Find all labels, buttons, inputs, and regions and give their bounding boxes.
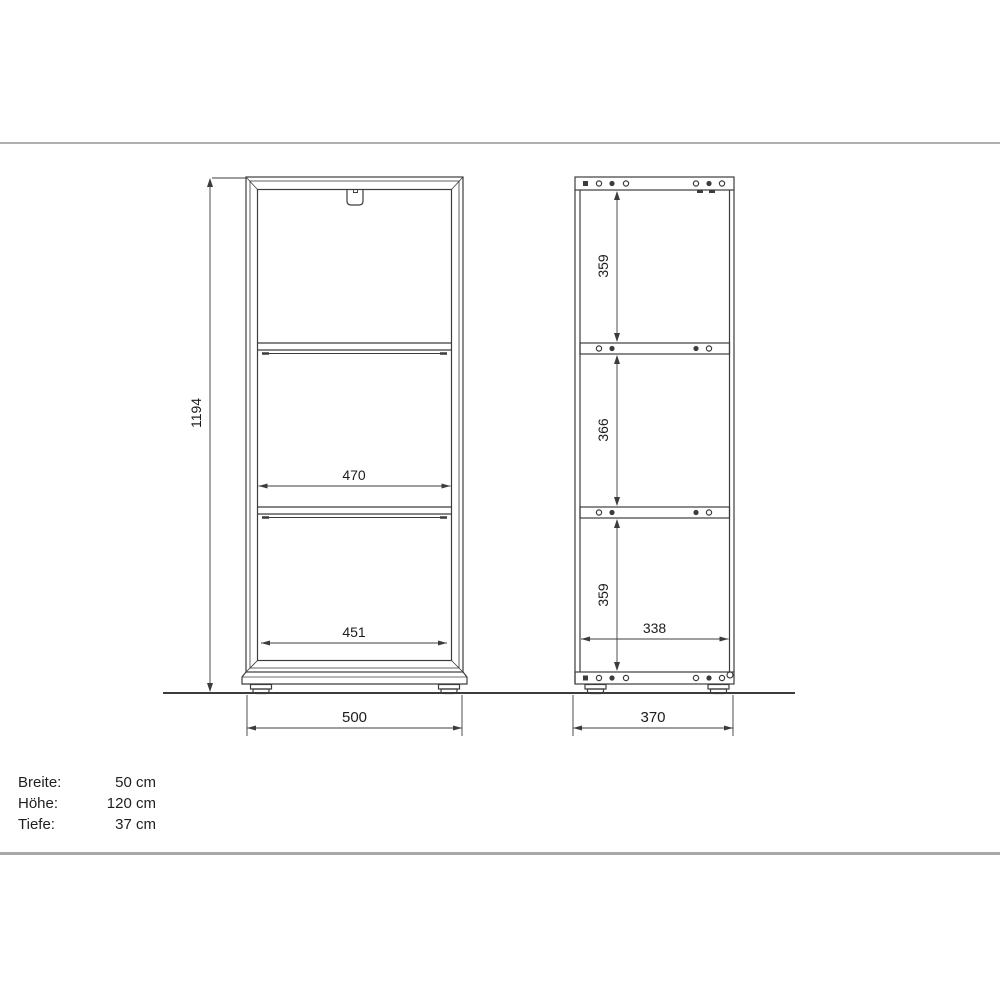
front-shelf-upper (258, 343, 452, 354)
side-bottom-compartment-label: 359 (595, 583, 611, 607)
screw-holes-top (583, 181, 725, 193)
front-shelf-lower (258, 507, 452, 518)
spec-value-depth: 37 cm (90, 814, 156, 835)
spec-label-width: Breite: (18, 772, 90, 793)
screw-holes-lower-shelf (596, 510, 711, 515)
side-inner-depth-label: 338 (643, 620, 667, 636)
spec-panel: Breite: 50 cm Höhe: 120 cm Tiefe: 37 cm (18, 772, 156, 835)
front-shelf-width-label: 470 (342, 467, 366, 483)
side-front-panel (730, 190, 735, 672)
spec-value-height: 120 cm (90, 793, 156, 814)
screw-holes-upper-shelf (596, 346, 711, 351)
spec-row-width: Breite: 50 cm (18, 772, 156, 793)
side-top-compartment-label: 359 (595, 254, 611, 278)
front-outer-frame (246, 177, 463, 672)
front-dimensions (207, 178, 462, 736)
front-overall-width-label: 500 (342, 709, 367, 726)
front-inner-frame (258, 190, 452, 661)
spec-row-height: Höhe: 120 cm (18, 793, 156, 814)
front-bottom-width-label: 451 (342, 624, 366, 640)
front-base-molding (242, 672, 467, 684)
spec-label-depth: Tiefe: (18, 814, 90, 835)
screw-holes-bottom (583, 672, 733, 681)
technical-drawing: 1194 470 451 500 359 366 359 338 370 (0, 0, 1000, 1000)
front-overall-height-label: 1194 (188, 398, 204, 428)
side-middle-compartment-label: 366 (595, 418, 611, 442)
side-overall-depth-label: 370 (640, 709, 665, 726)
spec-label-height: Höhe: (18, 793, 90, 814)
product-dimension-sheet: 1194 470 451 500 359 366 359 338 370 Bre… (0, 0, 1000, 1000)
side-back-panel (575, 190, 580, 684)
spec-row-depth: Tiefe: 37 cm (18, 814, 156, 835)
front-view (242, 177, 467, 694)
spec-value-width: 50 cm (90, 772, 156, 793)
